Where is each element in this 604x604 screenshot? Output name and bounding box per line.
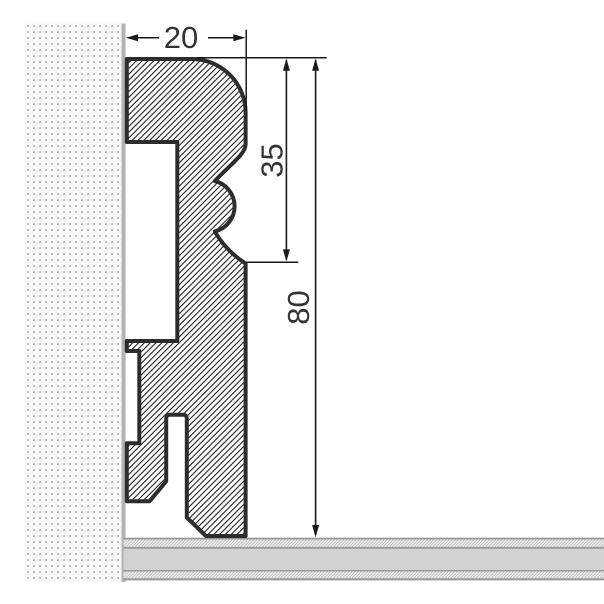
svg-text:80: 80: [281, 290, 316, 324]
svg-text:20: 20: [164, 20, 198, 55]
svg-text:35: 35: [255, 143, 290, 177]
